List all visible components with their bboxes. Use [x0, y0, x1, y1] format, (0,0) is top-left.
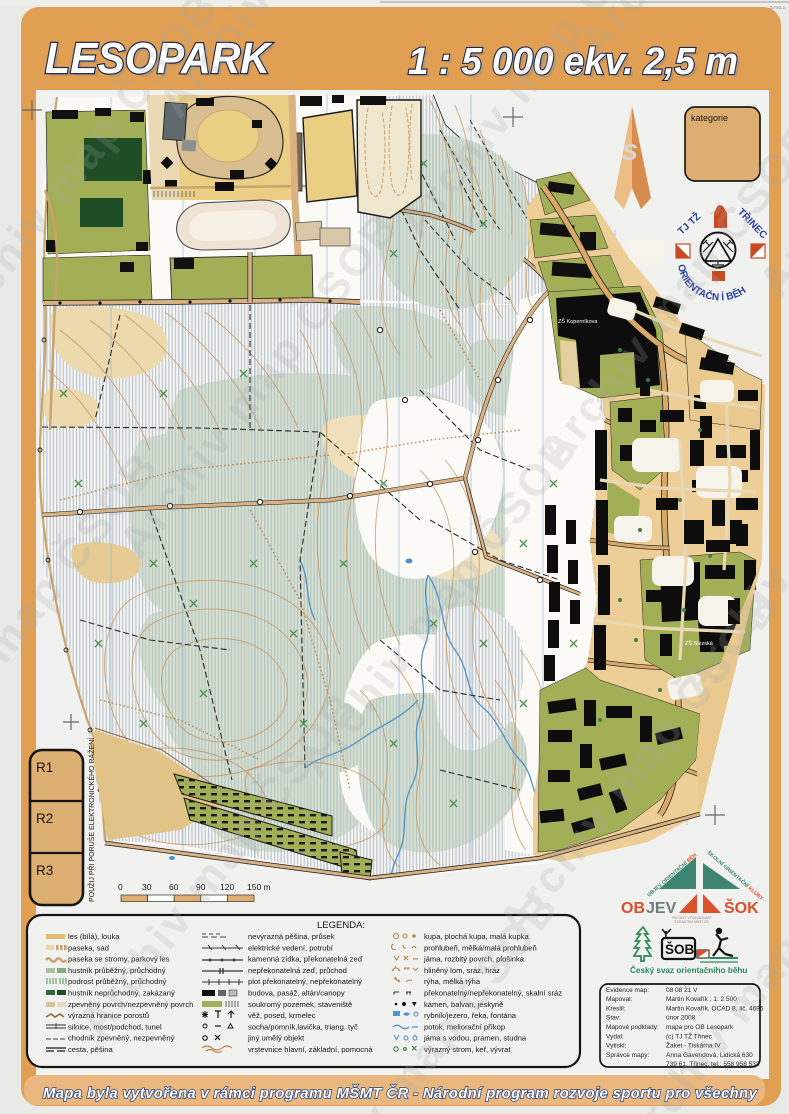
svg-text:nevýrazná pěšina, průsek: nevýrazná pěšina, průsek — [248, 932, 335, 941]
svg-text:Mapové podklady:: Mapové podklady: — [606, 1024, 659, 1031]
svg-text:kategorie: kategorie — [691, 113, 728, 123]
svg-text:nepřekonatelná zeď, průchod: nepřekonatelná zeď, průchod — [248, 966, 347, 975]
svg-text:Kreslil:: Kreslil: — [606, 1005, 626, 1012]
svg-text:vrstevnice hlavní, základní, p: vrstevnice hlavní, základní, pomocná — [248, 1045, 373, 1054]
svg-text:budova, pasáž, altán/canopy: budova, pasáž, altán/canopy — [248, 989, 345, 998]
svg-text:Český svaz orientačního běhu: Český svaz orientačního běhu — [630, 964, 747, 975]
svg-text:Vytiskl:: Vytiskl: — [606, 1043, 627, 1050]
svg-text:soukromý pozemek, staveniště: soukromý pozemek, staveniště — [248, 1000, 352, 1009]
svg-text:POUŽIJ PŘI PORUŠE ELEKTRONICKÉ: POUŽIJ PŘI PORUŠE ELEKTRONICKÉHO RAŽENÍ — [87, 738, 96, 902]
svg-text:chodník zpevněný, nezpevněný: chodník zpevněný, nezpevněný — [68, 1034, 175, 1043]
svg-text:S: S — [622, 139, 638, 165]
svg-text:R2: R2 — [36, 811, 53, 826]
svg-text:Vydal:: Vydal: — [606, 1033, 624, 1040]
svg-text:ŠOK: ŠOK — [724, 898, 759, 917]
svg-text:08 08 21 V: 08 08 21 V — [666, 987, 698, 994]
svg-text:ŠOB: ŠOB — [665, 942, 695, 957]
svg-text:socha/pomník,lavička, triang.: socha/pomník,lavička, triang. tyč — [248, 1022, 358, 1031]
svg-text:plot překonatelný, nepřekonate: plot překonatelný, nepřekonatelný — [248, 977, 362, 986]
svg-text:LEGENDA:: LEGENDA: — [317, 920, 365, 931]
svg-text:ZŠ Koperníkova: ZŠ Koperníkova — [558, 318, 598, 325]
svg-text:Správce mapy:: Správce mapy: — [606, 1052, 650, 1059]
svg-text:JEV: JEV — [646, 900, 677, 917]
svg-text:30: 30 — [142, 882, 152, 892]
svg-text:kamenná zídka, překonatelná ze: kamenná zídka, překonatelná zeď — [248, 955, 363, 964]
svg-text:R1: R1 — [36, 760, 53, 775]
svg-text:věž, posed, krmelec: věž, posed, krmelec — [248, 1011, 316, 1020]
svg-text:Evidence map:: Evidence map: — [606, 987, 649, 994]
svg-text:R3: R3 — [36, 863, 53, 878]
svg-text:únor 2008: únor 2008 — [666, 1015, 696, 1022]
svg-text:elektrické vedení, potrubí: elektrické vedení, potrubí — [248, 943, 334, 952]
svg-text:jiný umělý objekt: jiný umělý objekt — [247, 1034, 305, 1043]
svg-text:S GRANTEM MŠMT ČR: S GRANTEM MŠMT ČR — [674, 919, 709, 924]
svg-text:150 m: 150 m — [247, 882, 271, 892]
svg-text:OB: OB — [621, 900, 645, 917]
svg-text:les (bílá), louka: les (bílá), louka — [68, 932, 120, 941]
svg-text:0: 0 — [118, 882, 123, 892]
svg-text:Mapoval:: Mapoval: — [606, 996, 633, 1003]
svg-text:paseka, sad: paseka, sad — [68, 943, 109, 952]
svg-text:Stav:: Stav: — [606, 1015, 621, 1022]
